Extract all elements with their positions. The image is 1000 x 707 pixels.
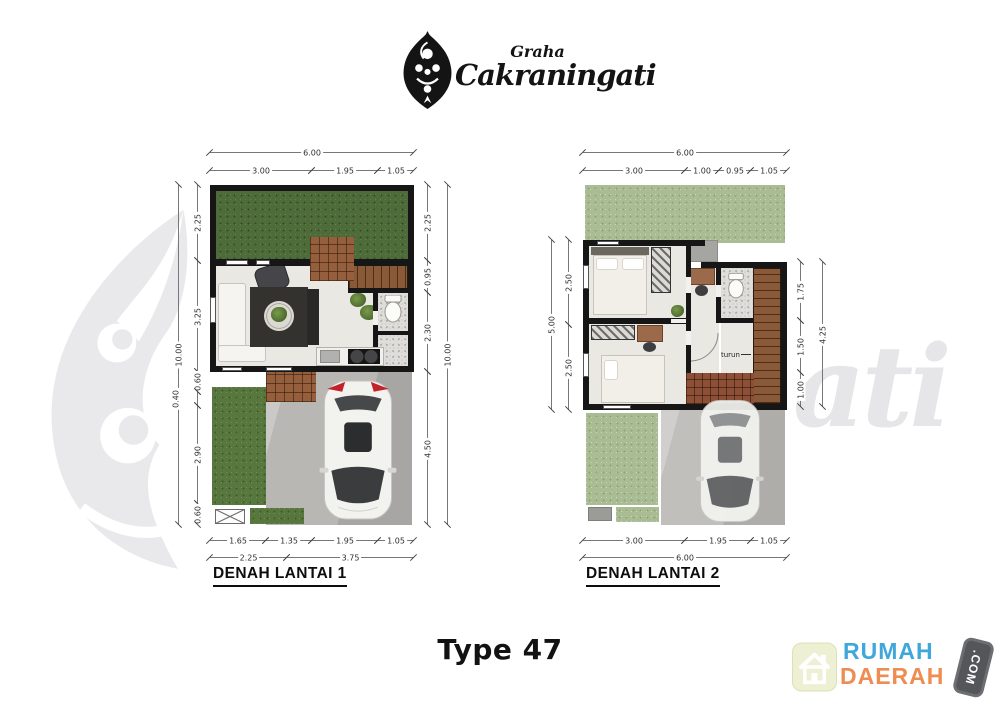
plan2-dim-top-4: 1.05 — [751, 170, 787, 171]
plan1-dim-right-3: 2.30 — [427, 293, 428, 372]
plan1-grass-patch — [250, 508, 304, 524]
plan2-dim-bottom-1: 3.00 — [583, 540, 685, 541]
brand-wordmark: Graha Cakraningati — [455, 42, 620, 92]
plan1-septic-tank-icon — [215, 509, 245, 524]
plan2-wardrobe-1 — [651, 247, 671, 293]
watermark-ornament — [28, 195, 213, 580]
plan1-porch-step — [266, 372, 316, 402]
plan2-vanity-desk — [689, 268, 715, 285]
plan2-wardrobe-2 — [591, 325, 635, 340]
plan2-wall-right — [781, 262, 787, 410]
plan1-dim-top-total: 6.00 — [210, 152, 414, 153]
floorplan-sheet: ati Graha Cakraningati — [0, 0, 1000, 707]
plan1-stairs — [348, 262, 408, 290]
plan1-front-yard-grass — [212, 387, 266, 505]
plan1-dim-left-5: 2.90 — [197, 406, 198, 504]
plan2-dim-right-3: 1.00 — [800, 373, 801, 407]
plan1-wall-left — [210, 185, 216, 372]
plan2-car — [689, 397, 771, 525]
plan1-car — [316, 377, 400, 523]
plan1-kitchen-sink — [320, 350, 340, 363]
plan2-backyard-view — [585, 185, 785, 243]
plan1-window-b — [256, 260, 270, 265]
plan2-bed1-pillow-b — [622, 258, 644, 270]
rumahdaerah-badge: RUMAH DAERAH .COM — [790, 638, 1000, 700]
plan2-dim-right-1: 1.75 — [800, 262, 801, 321]
plan1-dim-bottom-outer-1: 2.25 — [210, 557, 287, 558]
plan1-title: DENAH LANTAI 1 — [213, 565, 347, 587]
plan2-dim-left-1: 2.50 — [568, 240, 569, 325]
plan1-dim-bottom-3: 1.95 — [312, 540, 378, 541]
plan1-dim-bottom-2: 1.35 — [266, 540, 312, 541]
plan2-dim-bottom-2: 1.95 — [685, 540, 751, 541]
floor-plan-2-drawing: turun — [583, 185, 787, 525]
plan2-bed1-pillow-a — [596, 258, 618, 270]
badge-word-daerah: DAERAH — [840, 663, 944, 690]
plan1-entry-door — [266, 367, 292, 371]
plan1-dim-left-1: 2.25 — [197, 185, 198, 261]
plan2-wall-top-right — [701, 262, 787, 268]
plan2-bed1-door — [686, 277, 691, 293]
plan2-dim-top-3: 0.95 — [719, 170, 751, 171]
floor-plan-1-drawing: naik — [210, 185, 414, 525]
plan2-stairs — [753, 268, 781, 404]
plan2-utility-box — [588, 507, 612, 521]
plan1-bath-divider — [373, 331, 408, 335]
plan2-window-bed1 — [583, 265, 589, 289]
plan1-patio-step — [310, 237, 354, 281]
badge-com-text: .COM — [962, 649, 984, 687]
plan2-toilet-icon — [726, 273, 746, 299]
plan1-dim-top-2: 1.95 — [312, 170, 378, 171]
plan1-dim-top-1: 3.00 — [210, 170, 312, 171]
plan1-sofa-chaise — [218, 345, 266, 362]
watermark-text: ati — [793, 322, 948, 453]
plan1-dim-right-1: 2.25 — [427, 185, 428, 261]
plan2-wall-bath-bottom — [716, 318, 753, 323]
plan1-dim-left-3: 0.60 — [197, 372, 198, 392]
house-icon — [792, 642, 837, 692]
plan1-stove — [348, 349, 380, 364]
plan2-window-top — [597, 241, 619, 245]
plan1-dim-bottom-4: 1.05 — [378, 540, 414, 541]
plan1-window-front — [222, 367, 242, 371]
plan2-front-yard-view — [586, 413, 658, 505]
plan1-dim-bottom-outer-2: 3.75 — [287, 557, 414, 558]
plan2-bed1-headboard — [591, 247, 649, 255]
plan1-dim-right-total: 10.00 — [447, 185, 448, 525]
plan2-bath-door — [716, 285, 721, 297]
plan1-dim-right-4: 4.50 — [427, 372, 428, 525]
plan2-stairs-label: turun — [721, 351, 740, 359]
plan2-dim-left-total: 5.00 — [551, 240, 552, 410]
plan2-bed2-pillow — [604, 360, 618, 380]
plan2-dim-right-total: 4.25 — [822, 262, 823, 407]
plan1-wall-top — [210, 185, 414, 191]
plan2-dim-right-2: 1.50 — [800, 321, 801, 373]
plan2-window-front — [603, 405, 631, 409]
plan2-bed2-door — [686, 331, 691, 345]
plan2-dim-bottom-3: 1.05 — [751, 540, 787, 541]
plan2-dim-bottom-outer: 6.00 — [583, 557, 787, 558]
plan1-dim-left-total: 10.00 — [178, 185, 179, 525]
plan2-desk-2 — [637, 325, 663, 342]
brand-emblem-icon — [399, 30, 456, 110]
plan2-window-bed2 — [583, 353, 589, 377]
plan1-tv-console — [307, 289, 319, 345]
plan2-dim-top-total: 6.00 — [583, 152, 787, 153]
plan1-dim-top-3: 1.05 — [378, 170, 414, 171]
plan2-desk-chair — [643, 342, 656, 352]
plan1-dim-right-2: 0.95 — [427, 261, 428, 293]
plan2-stairs-arrow — [741, 354, 751, 355]
plan2-dim-top-2: 1.00 — [685, 170, 719, 171]
plan1-sofa — [218, 283, 246, 353]
plan2-dim-left-2: 2.50 — [568, 325, 569, 410]
plan1-dim-bottom-1: 1.65 — [210, 540, 266, 541]
badge-word-rumah: RUMAH — [843, 638, 934, 665]
plan1-dim-left-2: 3.25 — [197, 261, 198, 372]
plan1-toilet-icon — [382, 295, 404, 323]
plan2-vanity-chair — [695, 285, 708, 296]
plan1-dim-left-6: 0.60 — [197, 504, 198, 525]
plan1-bath-door — [373, 311, 378, 325]
plan2-mid-door — [671, 319, 687, 323]
plan2-dim-top-1: 3.00 — [583, 170, 685, 171]
plan2-grass-patch — [616, 507, 659, 522]
badge-com-tag: .COM — [952, 636, 996, 699]
plan1-wall-right — [408, 185, 414, 372]
plan1-window-a — [226, 260, 248, 265]
plan1-window-left — [210, 297, 216, 323]
plan2-title: DENAH LANTAI 2 — [586, 565, 720, 587]
plan2-door-arc — [689, 333, 719, 363]
brand-name-text: Cakraningati — [455, 58, 620, 92]
